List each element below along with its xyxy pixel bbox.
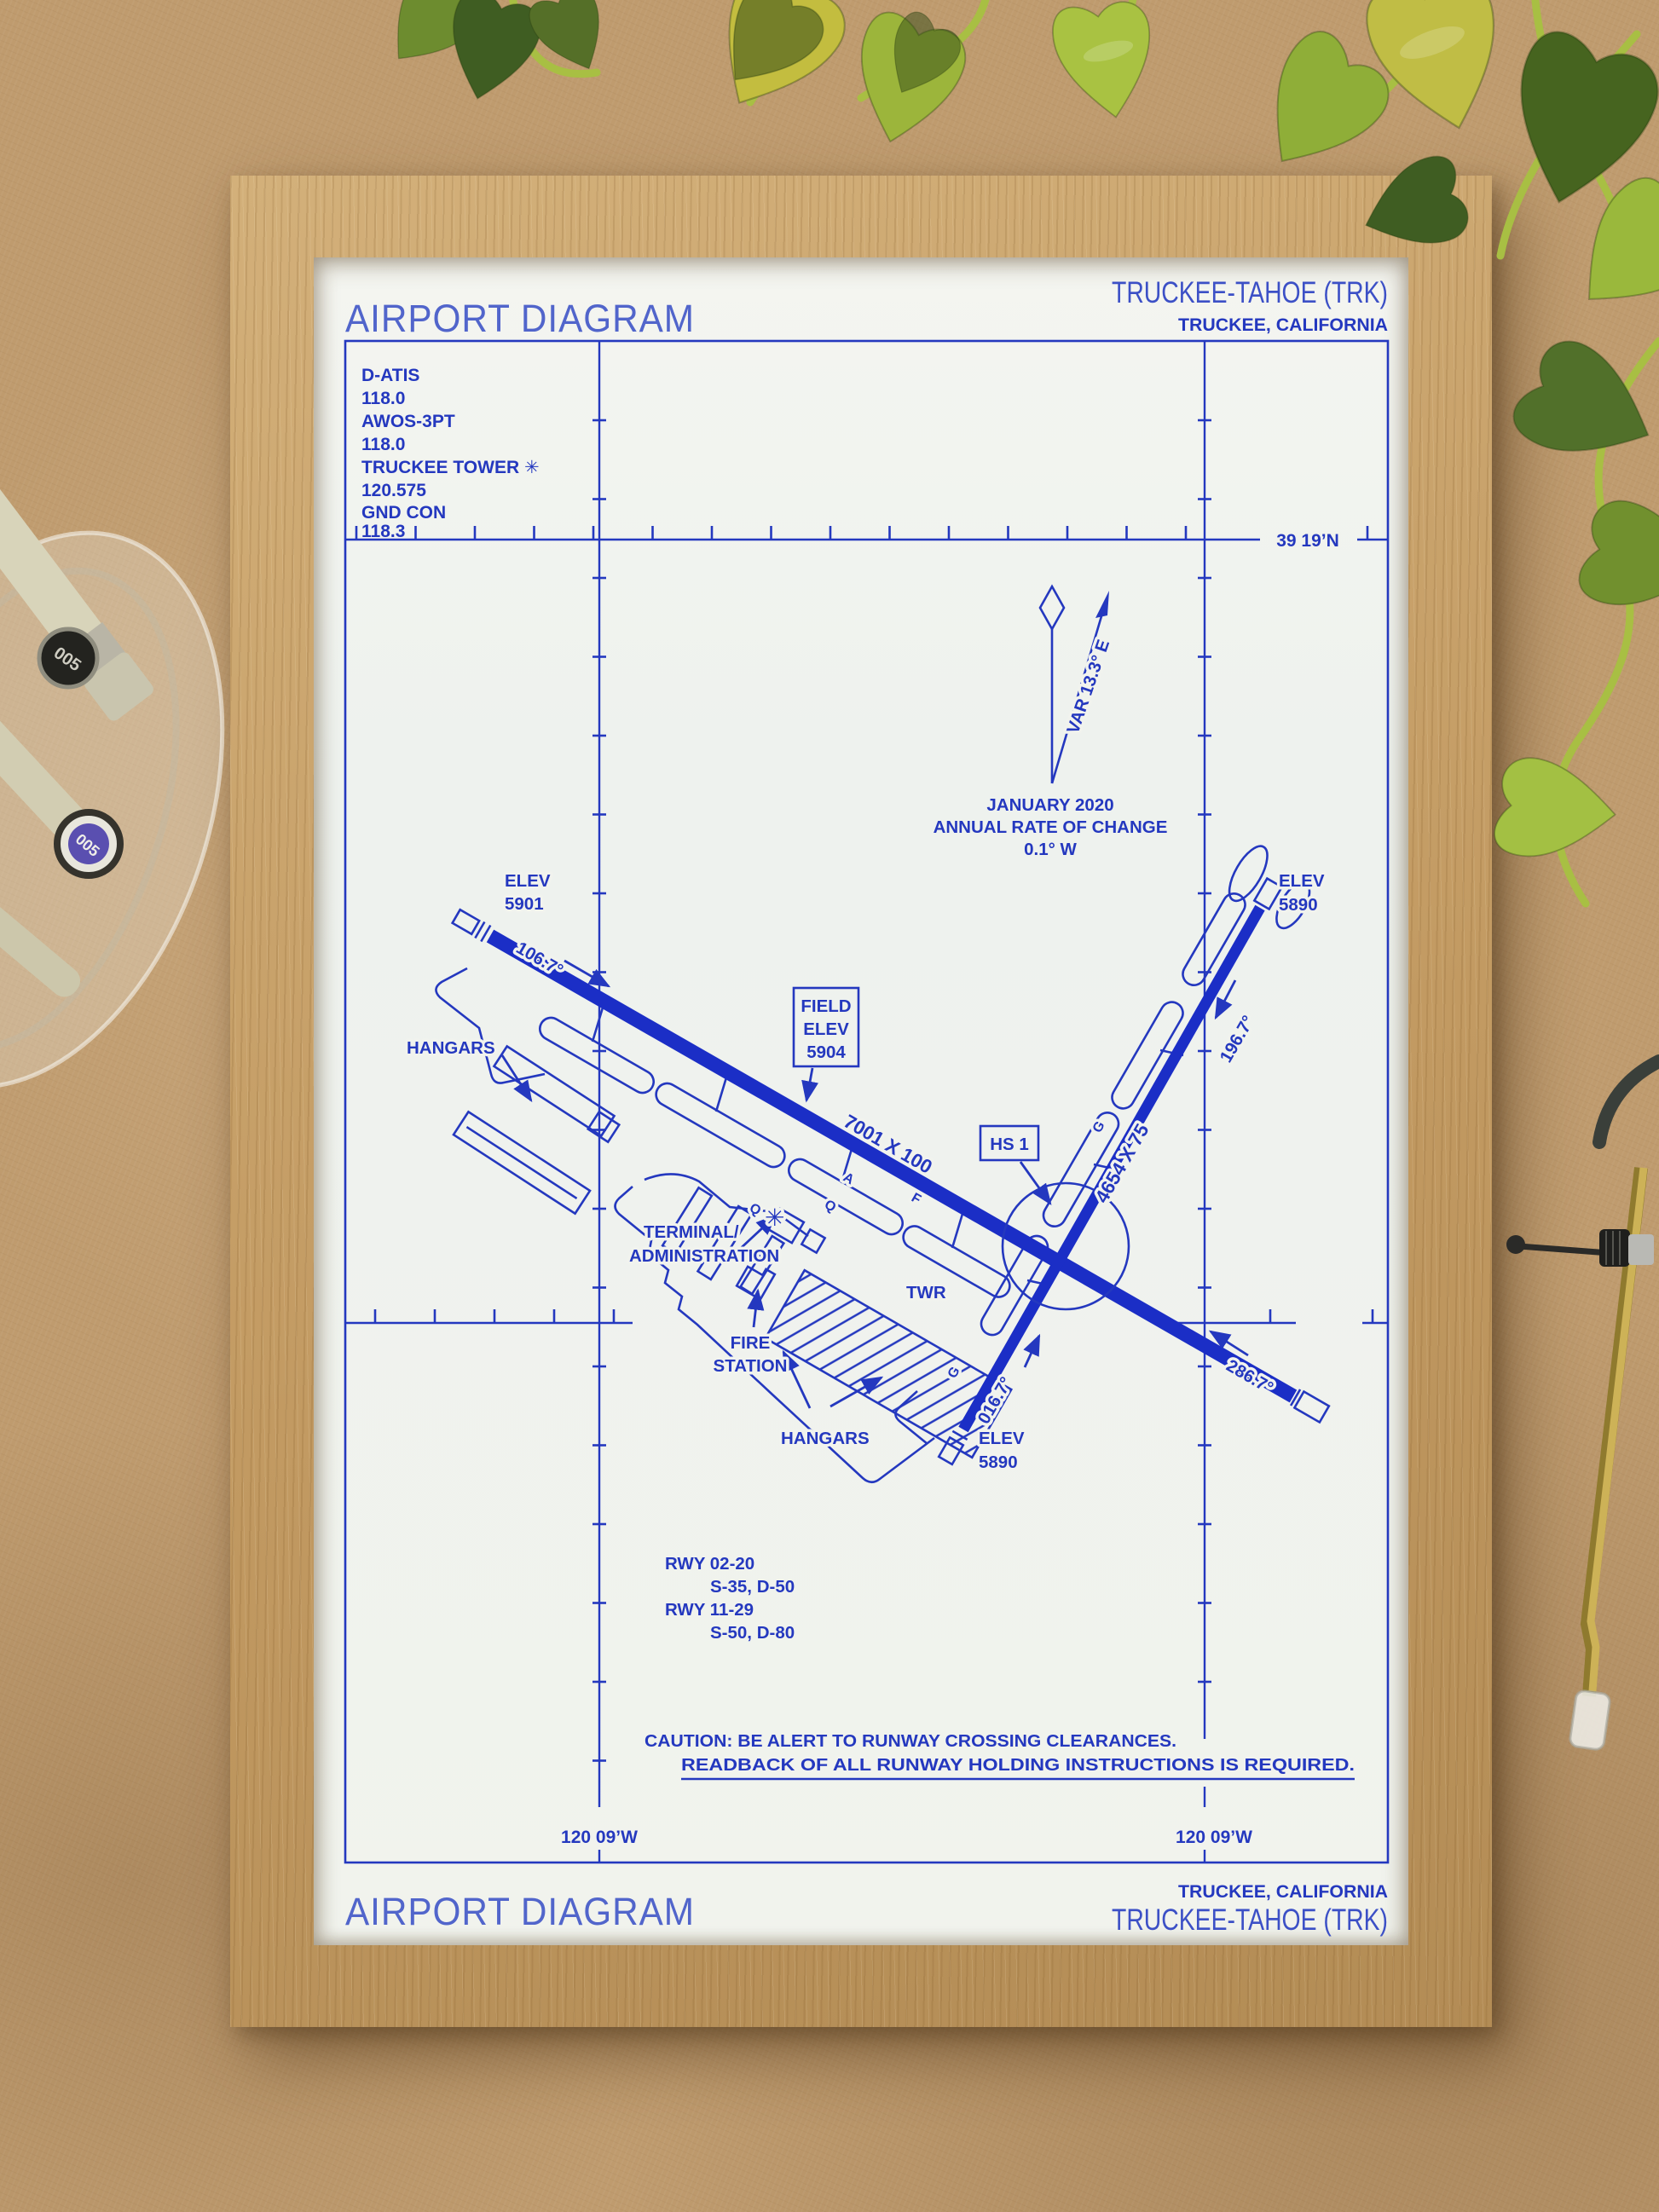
pen-glass: 005 005 bbox=[0, 437, 288, 1135]
plant-stems bbox=[512, 0, 1659, 904]
photo-scene: AIRPORT DIAGRAM TRUCKEE-TAHOE (TRK) TRUC… bbox=[0, 0, 1659, 2212]
drafting-tool bbox=[1506, 1061, 1659, 1750]
plant-foliage bbox=[369, 0, 1659, 863]
desk-props: 005 005 bbox=[0, 0, 1659, 2212]
